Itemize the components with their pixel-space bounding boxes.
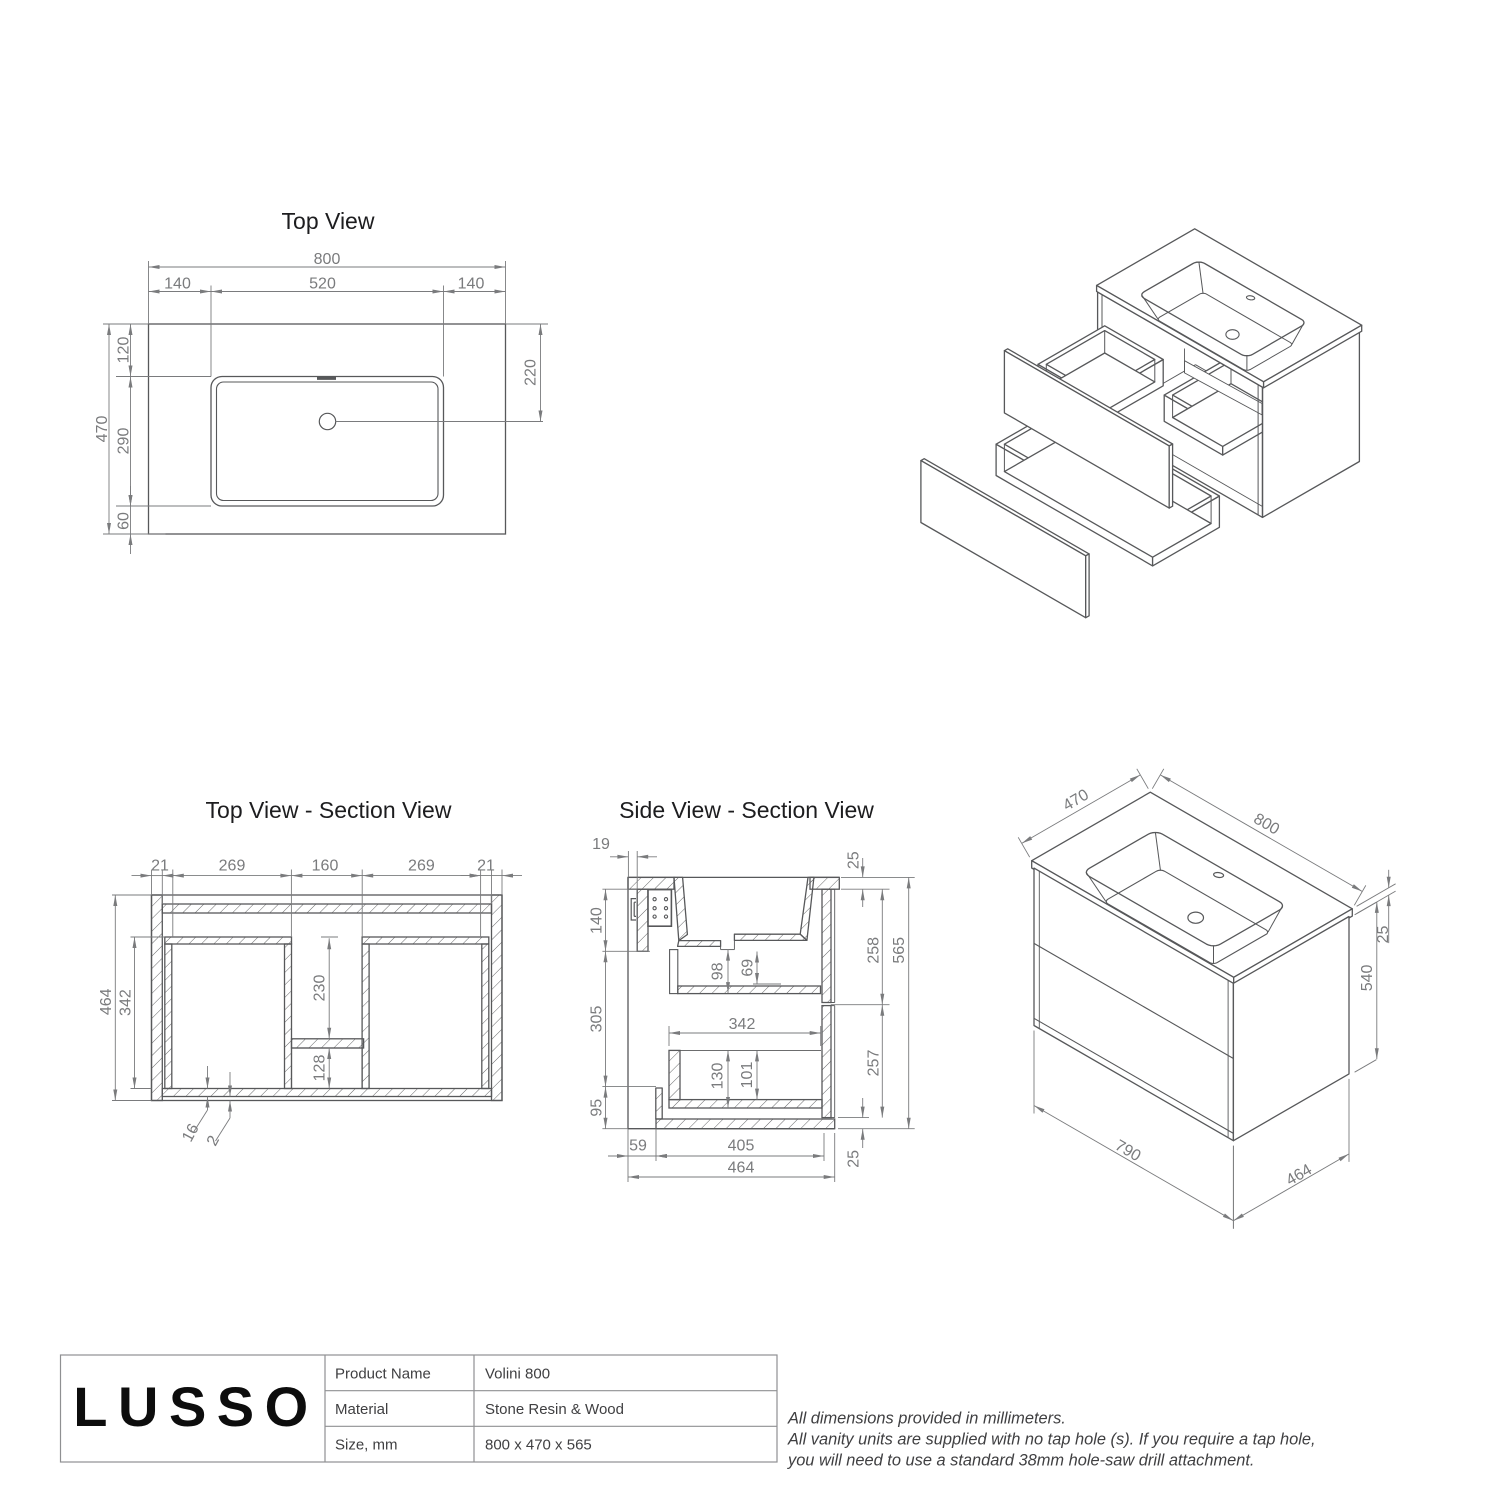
svg-text:342: 342 bbox=[729, 1016, 756, 1033]
svg-text:269: 269 bbox=[408, 858, 435, 875]
svg-text:Material: Material bbox=[335, 1401, 388, 1418]
svg-text:59: 59 bbox=[629, 1138, 647, 1155]
svg-text:60: 60 bbox=[116, 512, 133, 530]
svg-text:130: 130 bbox=[710, 1063, 727, 1090]
svg-text:98: 98 bbox=[710, 962, 727, 980]
svg-text:25: 25 bbox=[1375, 926, 1392, 944]
svg-text:540: 540 bbox=[1359, 964, 1376, 991]
svg-text:All vanity units are supplied: All vanity units are supplied with no ta… bbox=[787, 1431, 1316, 1449]
svg-text:128: 128 bbox=[312, 1055, 329, 1082]
svg-text:25: 25 bbox=[845, 851, 862, 869]
svg-text:257: 257 bbox=[866, 1050, 883, 1077]
svg-text:95: 95 bbox=[589, 1099, 606, 1117]
svg-text:21: 21 bbox=[151, 858, 169, 875]
svg-text:800 x 470 x 565: 800 x 470 x 565 bbox=[485, 1437, 592, 1454]
svg-text:Volini 800: Volini 800 bbox=[485, 1365, 550, 1382]
svg-text:160: 160 bbox=[312, 858, 339, 875]
svg-text:Stone Resin & Wood: Stone Resin & Wood bbox=[485, 1401, 624, 1418]
svg-text:342: 342 bbox=[118, 989, 135, 1016]
svg-text:405: 405 bbox=[728, 1138, 755, 1155]
svg-text:140: 140 bbox=[458, 276, 485, 293]
svg-text:470: 470 bbox=[94, 416, 111, 443]
svg-text:464: 464 bbox=[98, 988, 115, 1015]
svg-text:258: 258 bbox=[866, 937, 883, 964]
svg-text:140: 140 bbox=[164, 276, 191, 293]
svg-text:120: 120 bbox=[116, 337, 133, 364]
svg-text:25: 25 bbox=[845, 1150, 862, 1168]
svg-text:101: 101 bbox=[739, 1062, 756, 1089]
svg-text:520: 520 bbox=[309, 276, 336, 293]
svg-text:464: 464 bbox=[728, 1160, 755, 1177]
svg-text:800: 800 bbox=[314, 251, 341, 268]
svg-text:Product Name: Product Name bbox=[335, 1365, 431, 1382]
svg-text:230: 230 bbox=[312, 975, 329, 1002]
svg-text:565: 565 bbox=[891, 937, 908, 964]
svg-text:Top View: Top View bbox=[282, 208, 375, 234]
svg-text:69: 69 bbox=[740, 959, 757, 977]
svg-text:Size, mm: Size, mm bbox=[335, 1437, 398, 1454]
svg-text:Side View - Section View: Side View - Section View bbox=[619, 797, 874, 823]
svg-text:LUSSO: LUSSO bbox=[73, 1375, 318, 1438]
svg-text:269: 269 bbox=[219, 858, 246, 875]
svg-text:305: 305 bbox=[589, 1006, 606, 1033]
svg-text:220: 220 bbox=[523, 359, 540, 386]
svg-text:140: 140 bbox=[589, 907, 606, 934]
svg-text:21: 21 bbox=[477, 858, 495, 875]
svg-text:Top View - Section View: Top View - Section View bbox=[206, 797, 452, 823]
svg-text:290: 290 bbox=[116, 428, 133, 455]
svg-text:All dimensions provided in mil: All dimensions provided in millimeters. bbox=[787, 1410, 1066, 1428]
svg-text:you will need to use a standar: you will need to use a standard 38mm hol… bbox=[787, 1452, 1254, 1470]
svg-text:19: 19 bbox=[592, 836, 610, 853]
